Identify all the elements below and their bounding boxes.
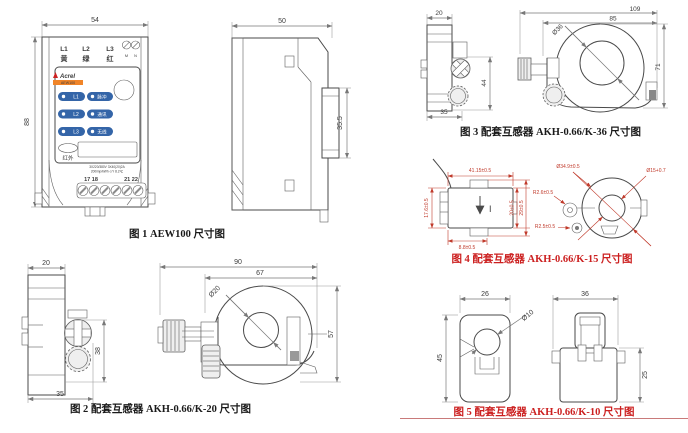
fig2-front-view: 90 67 Ø20 57 bbox=[158, 259, 341, 384]
fig1-front-view-drawing: 54 88 L1 L2 L3 黄 绿 红 M N Acrel bbox=[20, 10, 198, 238]
fig3-caption: 图 3 配套互感器 AKH-0.66/K-36 尺寸图 bbox=[438, 124, 663, 139]
fig1-side-view-drawing: 50 35.5 bbox=[224, 10, 364, 238]
fig2-caption: 图 2 配套互感器 AKH-0.66/K-20 尺寸图 bbox=[58, 401, 263, 416]
spec-line-1: 3X220/380V 3X40(20)2A bbox=[89, 165, 125, 169]
fig5-caption: 图 5 配套互感器 AKH-0.66/K-10 尺寸图 bbox=[434, 404, 654, 419]
bottom-knurled-knob bbox=[202, 345, 220, 378]
fig3-front-view: 109 85 Ø36 71 bbox=[518, 6, 668, 112]
locking-thumbscrew bbox=[518, 58, 531, 80]
technical-drawing-page: 54 88 L1 L2 L3 黄 绿 红 M N Acrel bbox=[0, 0, 688, 433]
led-l1-label: L1 bbox=[73, 95, 79, 101]
clamp-top-jaw bbox=[575, 313, 605, 349]
ct-ring-hole bbox=[599, 195, 625, 221]
terminal-numbers-left: 17 18 bbox=[84, 177, 98, 183]
side-width-dimension: 50 bbox=[232, 18, 332, 38]
terminal-numbers-right: 21 22 bbox=[124, 177, 138, 183]
clamp-lower-body bbox=[560, 348, 617, 402]
knurled-knob bbox=[66, 347, 91, 372]
clamp-ct-body bbox=[460, 315, 510, 402]
fig4-side-view: I 41.15±0.5 17.6±0.5 8.8±0.5 20±0.5 29±0… bbox=[424, 159, 530, 251]
terminal-n-label: N bbox=[134, 54, 137, 58]
phase-l1-label: L1 bbox=[60, 46, 68, 53]
fig2-drawing: 20 38 35 90 67 bbox=[15, 255, 385, 420]
fig4-dim-outer-h: 29±0.5 bbox=[519, 200, 525, 215]
side-dim-width: 50 bbox=[278, 18, 286, 25]
fig2-dim-right-h: 57 bbox=[328, 330, 335, 338]
fig2-dim-outer-w: 90 bbox=[234, 259, 242, 266]
fig4-dim-left: 17.6±0.5 bbox=[424, 198, 430, 218]
fig4-dim-inner-h: 20±0.5 bbox=[510, 200, 516, 215]
fig5-dim-hole: Ø10 bbox=[521, 309, 536, 323]
fig2-dim-height: 38 bbox=[95, 347, 102, 355]
conductor-hole bbox=[474, 329, 500, 355]
fig3-dim-inner-w: 85 bbox=[609, 16, 617, 23]
fig1-dim-width: 54 bbox=[91, 17, 99, 24]
fig4-dim-r2: R2.5±0.5 bbox=[535, 224, 555, 230]
locking-thumbscrew bbox=[163, 320, 185, 352]
fig3-dim-right-h: 71 bbox=[655, 63, 662, 71]
fig3-dim-top: 20 bbox=[435, 10, 443, 17]
spec-line-2: 200imp/kWh ⊙Y 8.2℃ bbox=[91, 170, 124, 174]
fig3-dim-outer-w: 109 bbox=[630, 6, 641, 13]
fig2-dim-inner-w: 67 bbox=[256, 270, 264, 277]
round-knurled-knob bbox=[448, 86, 468, 106]
fig3-dim-height: 44 bbox=[481, 79, 488, 87]
led-l2-label: L2 bbox=[73, 112, 79, 118]
fig2-dim-top: 20 bbox=[42, 260, 50, 267]
fig2-dim-bottom: 35 bbox=[56, 391, 64, 398]
led-wireless-label: 无线 bbox=[97, 129, 107, 136]
fig1-dim-height: 88 bbox=[24, 118, 31, 126]
fig2-side-view: 20 38 35 bbox=[22, 260, 107, 403]
fig4-caption: 图 4 配套互感器 AKH-0.66/K-15 尺寸图 bbox=[432, 251, 652, 266]
fig1-height-dimension: 88 bbox=[24, 37, 42, 207]
led-comm-label: 通讯 bbox=[97, 111, 107, 118]
side-dim-rail: 35.5 bbox=[337, 116, 344, 130]
fig1-width-dimension: 54 bbox=[42, 17, 148, 37]
led-l3-label: L3 bbox=[73, 130, 79, 136]
fig5-side-view: 36 25 bbox=[552, 291, 649, 402]
fig5-dim-w-left: 26 bbox=[481, 291, 489, 298]
fig5-caption-underline bbox=[400, 418, 688, 419]
fig4-front-view: Ø34.9±0.5 Ø15+0.7 R2.6±0.5 R2.5±0.5 bbox=[533, 164, 666, 246]
fig4-dim-outer-d: Ø34.9±0.5 bbox=[556, 164, 580, 170]
fig3-dim-bottom: 35 bbox=[440, 109, 448, 116]
infrared-label: 红外 bbox=[62, 154, 74, 162]
fig5-dim-h-right: 25 bbox=[642, 371, 649, 379]
mounting-foot bbox=[320, 210, 328, 222]
side-body bbox=[232, 38, 328, 222]
fig3-side-view: 20 44 35 bbox=[421, 10, 493, 121]
fig5-dim-w-right: 36 bbox=[581, 291, 589, 298]
phase-l3-label: L3 bbox=[106, 46, 114, 53]
fig3-dim-hole: Ø36 bbox=[551, 23, 565, 37]
wire-color-yellow-label: 黄 bbox=[61, 54, 68, 63]
infrared-window bbox=[59, 144, 78, 153]
fig5-front-view: 26 45 Ø10 bbox=[437, 291, 535, 402]
fig4-dim-hole-d: Ø15+0.7 bbox=[646, 168, 666, 174]
fig4-dim-r1: R2.6±0.5 bbox=[533, 190, 553, 196]
fig4-dim-top: 41.15±0.5 bbox=[469, 168, 491, 174]
led-pulse-label: 脉冲 bbox=[97, 94, 107, 101]
current-mark: I bbox=[489, 204, 492, 214]
wire-color-green-label: 绿 bbox=[83, 54, 91, 63]
fig3-drawing: 20 44 35 109 85 bbox=[413, 6, 688, 136]
display-window bbox=[78, 142, 137, 157]
fig2-dim-hole: Ø20 bbox=[208, 285, 222, 299]
model-label: AEW100 bbox=[61, 81, 75, 85]
mounting-lug bbox=[563, 203, 577, 217]
fig1-caption: 图 1 AEW100 尺寸图 bbox=[112, 226, 242, 241]
fig5-drawing: 26 45 Ø10 36 25 bbox=[428, 283, 686, 421]
fig5-dim-h-left: 45 bbox=[437, 354, 444, 362]
phase-l2-label: L2 bbox=[82, 46, 90, 53]
brand-label: Acrel bbox=[59, 74, 75, 80]
terminal-m-label: M bbox=[125, 54, 128, 58]
wire-color-red-label: 红 bbox=[107, 54, 114, 63]
fig4-drawing: I 41.15±0.5 17.6±0.5 8.8±0.5 20±0.5 29±0… bbox=[418, 150, 688, 262]
